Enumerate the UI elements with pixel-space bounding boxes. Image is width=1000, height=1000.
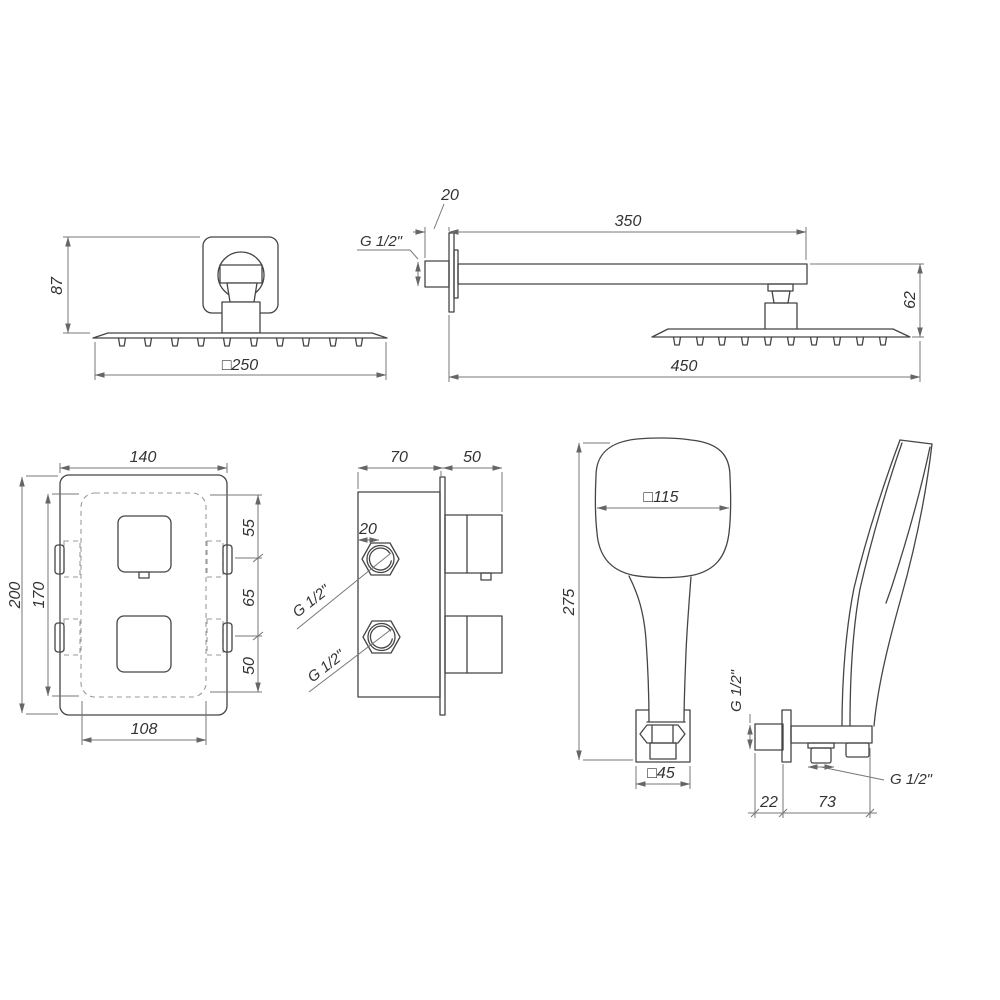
clip-hidden	[207, 619, 223, 655]
dim-head-width: □115	[643, 489, 678, 506]
upper-knob	[118, 516, 171, 572]
upper-knob-side	[445, 515, 502, 573]
dim-port-size: 20	[358, 521, 377, 538]
outlet-stub	[755, 724, 783, 750]
joint-base	[222, 302, 260, 333]
handle-left-edge	[629, 576, 649, 722]
dim-plate-width: 108	[131, 721, 158, 738]
clip-hidden	[207, 541, 223, 577]
nozzles	[119, 338, 363, 346]
dim-arm-length: 350	[615, 213, 642, 230]
upper-port-hex	[362, 543, 399, 575]
wall-stub	[425, 261, 449, 287]
dim-head-width: □250	[222, 357, 258, 374]
arm-joint-cube	[765, 303, 797, 330]
dim-bottom-offset: 50	[241, 657, 258, 675]
ball-face	[220, 265, 262, 283]
shower-plate	[93, 333, 387, 338]
drawing-mixer-side: 70 50 20 G 1/2" G 1/2"	[290, 449, 502, 715]
shower-plate-side	[652, 329, 910, 337]
dim-holder-width: □45	[647, 765, 675, 782]
nozzles	[674, 337, 887, 345]
joint-neck	[227, 283, 257, 302]
drawing-shower-arm-side: 20 350 G 1/2" 62 450	[357, 187, 924, 382]
holder-plate	[636, 710, 690, 762]
technical-drawing-page: 87 □250 20 350 G 1/2"	[0, 0, 1000, 1000]
upper-knob-tab	[139, 572, 149, 578]
dim-knob-spacing: 65	[241, 589, 258, 607]
dim-body-depth: 70	[390, 449, 408, 466]
outlet-thread	[811, 748, 831, 763]
drawing-wall-outlet-side: G 1/2" G 1/2" 22 73	[728, 440, 933, 818]
dim-head-height: 87	[49, 276, 66, 295]
arm-joint-neck	[772, 291, 790, 303]
drawing-mixer-front: 140 200 170 55 65 50 108	[7, 449, 263, 745]
shower-arm	[458, 264, 807, 284]
mixer-plate-hidden	[81, 493, 206, 697]
dim-length: 275	[561, 589, 578, 617]
outlet-body	[791, 726, 872, 743]
mixer-faceplate	[440, 477, 445, 715]
upper-knob-nub	[481, 573, 491, 580]
dim-thread-bottom: G 1/2"	[890, 771, 933, 788]
dim-upper-thread: G 1/2"	[290, 581, 334, 621]
clip-hidden	[64, 541, 80, 577]
holder-stub	[650, 743, 676, 759]
dim-top-offset: 55	[241, 519, 258, 537]
clip-hidden	[64, 619, 80, 655]
dim-knob-depth: 50	[463, 449, 481, 466]
lower-knob-side	[445, 616, 502, 673]
hand-shower-wand	[842, 440, 932, 726]
shower-set-drawing: 87 □250 20 350 G 1/2"	[0, 0, 1000, 1000]
dim-lower-thread: G 1/2"	[305, 646, 349, 686]
drawing-hand-shower-front: □115 275 □45	[561, 438, 731, 789]
holder-cone	[846, 743, 869, 757]
dim-thread-wall: G 1/2"	[728, 669, 745, 712]
arm-joint-collar	[768, 284, 793, 291]
drawing-overhead-shower-front: 87 □250	[49, 237, 387, 380]
dim-head-drop: 62	[902, 291, 919, 309]
dim-plate-height: 170	[31, 582, 48, 609]
wall-flange	[449, 233, 454, 312]
dim-wall-offset: 22	[759, 794, 778, 811]
handle-right-edge	[684, 577, 691, 722]
holder-nut	[640, 725, 685, 743]
dim-wall-fitting: 20	[440, 187, 459, 204]
dim-total-reach: 450	[671, 358, 698, 375]
dim-arm-thread: G 1/2"	[360, 233, 403, 250]
lower-knob	[117, 616, 171, 672]
dim-box-height: 200	[7, 582, 24, 610]
outlet-collar	[808, 743, 834, 748]
mixer-box	[60, 475, 227, 715]
dim-body-length: 73	[818, 794, 836, 811]
dim-box-width: 140	[130, 449, 157, 466]
